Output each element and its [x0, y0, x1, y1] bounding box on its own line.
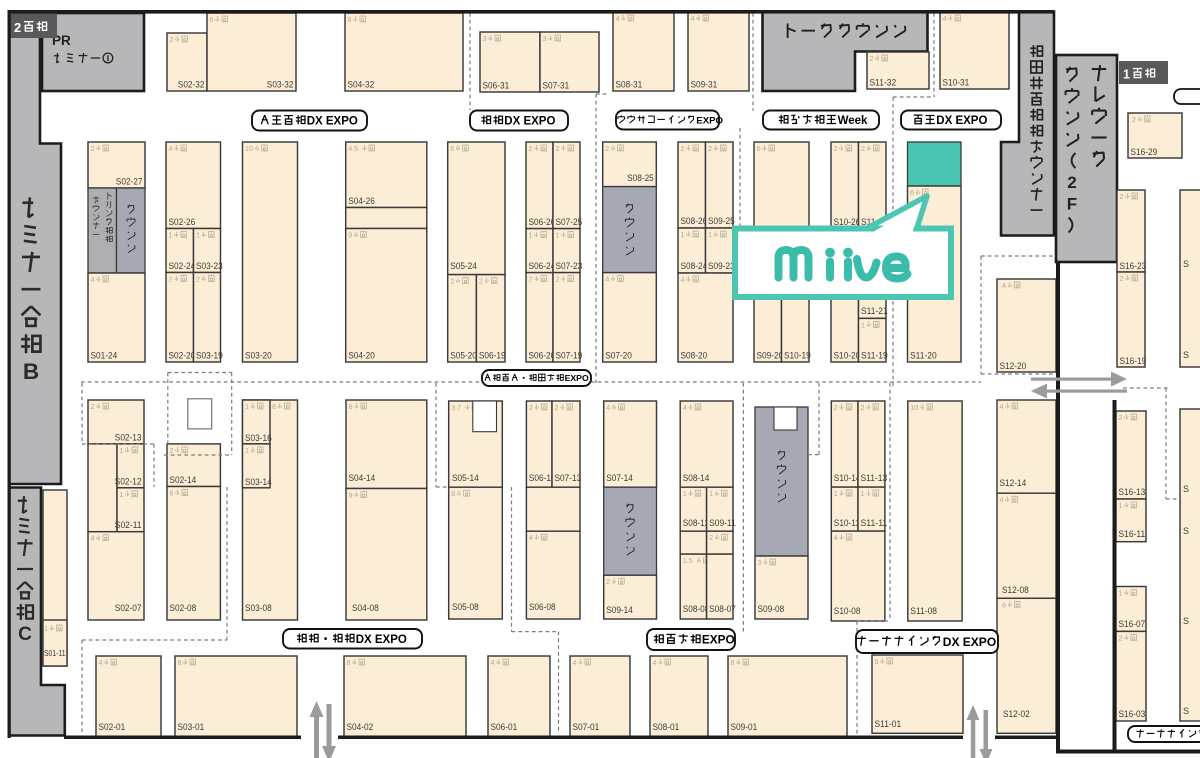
svg-text:S07-23: S07-23: [556, 261, 583, 271]
svg-text:S09-23: S09-23: [708, 261, 735, 271]
svg-text:1: 1: [861, 489, 865, 498]
svg-text:S08-08: S08-08: [683, 604, 710, 614]
svg-text:1: 1: [681, 230, 685, 239]
svg-text:8: 8: [178, 658, 182, 667]
svg-text:S16-13: S16-13: [1119, 487, 1146, 497]
svg-text:EXPO: EXPO: [702, 633, 735, 647]
svg-text:C: C: [18, 624, 32, 645]
svg-text:4: 4: [691, 14, 695, 23]
svg-text:S: S: [1183, 526, 1189, 536]
svg-text:2: 2: [834, 403, 838, 412]
svg-text:1: 1: [1119, 589, 1123, 598]
svg-text:S03-08: S03-08: [245, 603, 272, 613]
svg-text:S09-08: S09-08: [758, 604, 785, 614]
svg-text:2: 2: [1120, 192, 1124, 201]
svg-text:S12-20: S12-20: [1000, 361, 1027, 371]
svg-text:S07-01: S07-01: [573, 722, 600, 732]
svg-text:S05-14: S05-14: [452, 473, 479, 483]
svg-text:4: 4: [91, 275, 95, 284]
svg-text:S02-01: S02-01: [99, 722, 126, 732]
svg-text:2: 2: [834, 144, 838, 153]
svg-text:S07-14: S07-14: [606, 473, 633, 483]
svg-text:4: 4: [606, 403, 610, 412]
svg-text:EXPO: EXPO: [565, 373, 589, 383]
svg-text:S03-19: S03-19: [196, 351, 223, 361]
svg-text:S03-32: S03-32: [267, 80, 294, 90]
svg-text:S09-20: S09-20: [757, 351, 784, 361]
svg-text:4: 4: [169, 144, 173, 153]
svg-text:S02-27: S02-27: [116, 177, 143, 187]
svg-text:3: 3: [758, 558, 762, 567]
svg-text:4: 4: [834, 533, 838, 542]
svg-text:DX EXPO: DX EXPO: [936, 115, 987, 127]
svg-text:S09-01: S09-01: [731, 722, 758, 732]
svg-text:6: 6: [451, 489, 455, 498]
svg-text:1: 1: [529, 231, 533, 240]
svg-text:1: 1: [169, 231, 173, 240]
svg-text:6: 6: [757, 144, 761, 153]
svg-text:S02-14: S02-14: [170, 475, 197, 485]
svg-text:S06-20: S06-20: [529, 351, 556, 361]
svg-text:3: 3: [543, 34, 547, 43]
svg-text:S10-19: S10-19: [784, 351, 811, 361]
svg-text:S: S: [1183, 484, 1189, 494]
svg-text:S02-24: S02-24: [169, 261, 196, 271]
svg-text:4: 4: [683, 403, 687, 412]
svg-text:2: 2: [1119, 633, 1123, 642]
svg-text:8: 8: [731, 658, 735, 667]
svg-text:S04-26: S04-26: [348, 196, 375, 206]
svg-text:S16-11: S16-11: [1119, 529, 1146, 539]
svg-text:S16-19: S16-19: [1120, 356, 1147, 366]
svg-text:B: B: [23, 359, 39, 384]
svg-text:S07-25: S07-25: [556, 217, 583, 227]
svg-text:DX EXPO: DX EXPO: [356, 634, 407, 646]
svg-text:4: 4: [1000, 495, 1004, 504]
svg-text:S06-01: S06-01: [491, 722, 518, 732]
svg-text:S16-03: S16-03: [1119, 709, 1146, 719]
svg-text:S08-14: S08-14: [683, 473, 710, 483]
svg-text:2: 2: [170, 446, 174, 455]
svg-text:S16-07: S16-07: [1119, 619, 1146, 629]
svg-text:S: S: [1183, 616, 1189, 626]
svg-text:S08-24: S08-24: [681, 261, 708, 271]
svg-text:2: 2: [1120, 274, 1124, 283]
svg-text:6: 6: [349, 402, 353, 411]
svg-text:S06-26: S06-26: [529, 217, 556, 227]
svg-text:S11-32: S11-32: [870, 78, 897, 88]
svg-text:4: 4: [573, 658, 577, 667]
svg-text:1: 1: [683, 489, 687, 498]
svg-text:2: 2: [556, 144, 560, 153]
svg-text:2: 2: [196, 275, 200, 284]
svg-text:S02-07: S02-07: [115, 603, 142, 613]
svg-text:2: 2: [479, 277, 483, 286]
svg-text:S10-12: S10-12: [834, 518, 861, 528]
svg-text:S11-20: S11-20: [910, 351, 937, 361]
svg-text:6: 6: [348, 15, 352, 24]
svg-text:2: 2: [170, 35, 174, 44]
svg-text:2: 2: [708, 144, 712, 153]
svg-text:1: 1: [708, 230, 712, 239]
svg-text:S10-31: S10-31: [943, 78, 970, 88]
svg-text:2: 2: [861, 144, 865, 153]
svg-text:S05-20: S05-20: [450, 351, 477, 361]
svg-text:4: 4: [605, 275, 609, 284]
svg-text:10: 10: [245, 144, 253, 153]
svg-text:S10-08: S10-08: [834, 606, 861, 616]
svg-text:S06-19: S06-19: [479, 351, 506, 361]
svg-text:S16-29: S16-29: [1131, 147, 1158, 157]
svg-text:8: 8: [347, 658, 351, 667]
svg-text:S02-12: S02-12: [115, 476, 142, 486]
svg-text:S03-14: S03-14: [245, 477, 272, 487]
svg-text:S07-19: S07-19: [556, 351, 583, 361]
svg-text:S08-12: S08-12: [683, 518, 710, 528]
svg-text:3: 3: [483, 34, 487, 43]
svg-text:S03-23: S03-23: [196, 261, 223, 271]
svg-text:1: 1: [245, 446, 249, 455]
svg-text:1: 1: [1119, 501, 1123, 510]
svg-text:2: 2: [529, 144, 533, 153]
svg-text:DX EXPO: DX EXPO: [504, 116, 555, 128]
svg-text:4: 4: [653, 658, 657, 667]
svg-text:S02-20: S02-20: [169, 351, 196, 361]
svg-text:4: 4: [99, 658, 103, 667]
svg-text:S11-01: S11-01: [875, 719, 902, 729]
svg-text:2: 2: [870, 54, 874, 63]
svg-text:4: 4: [491, 658, 495, 667]
svg-text:8: 8: [272, 402, 276, 411]
svg-text:S05-24: S05-24: [450, 261, 477, 271]
svg-text:S02-11: S02-11: [115, 520, 142, 530]
svg-text:S07-20: S07-20: [605, 351, 632, 361]
svg-text:4: 4: [529, 533, 533, 542]
svg-text:S03-20: S03-20: [245, 351, 272, 361]
svg-text:4.5: 4.5: [348, 144, 358, 153]
svg-text:1: 1: [709, 489, 713, 498]
svg-text:2: 2: [861, 403, 865, 412]
svg-text:4: 4: [1002, 281, 1006, 290]
svg-text:4: 4: [681, 275, 685, 284]
svg-text:4: 4: [616, 14, 620, 23]
svg-text:S04-02: S04-02: [347, 722, 374, 732]
svg-text:S11-21: S11-21: [861, 306, 888, 316]
svg-text:S12-14: S12-14: [1000, 478, 1027, 488]
svg-text:1: 1: [196, 231, 200, 240]
svg-text:S08-26: S08-26: [681, 216, 708, 226]
svg-text:2: 2: [450, 277, 454, 286]
svg-text:1: 1: [44, 624, 48, 633]
svg-text:S08-07: S08-07: [709, 604, 736, 614]
svg-text:S12-08: S12-08: [1002, 585, 1029, 595]
svg-text:S10-20: S10-20: [834, 351, 861, 361]
svg-text:2: 2: [556, 275, 560, 284]
svg-text:1: 1: [861, 320, 865, 329]
svg-text:S11-11: S11-11: [861, 518, 888, 528]
svg-text:6: 6: [1002, 600, 1006, 609]
svg-text:DX EXPO: DX EXPO: [943, 635, 996, 649]
svg-text:S11-19: S11-19: [861, 351, 888, 361]
svg-text:S16-23: S16-23: [1120, 261, 1147, 271]
svg-text:4: 4: [91, 534, 95, 543]
svg-text:2: 2: [605, 144, 609, 153]
svg-text:1: 1: [834, 489, 838, 498]
svg-text:S03-01: S03-01: [178, 722, 205, 732]
svg-text:6: 6: [170, 489, 174, 498]
svg-text:S: S: [1183, 350, 1189, 360]
svg-text:S05-08: S05-08: [452, 602, 479, 612]
svg-text:S02-08: S02-08: [170, 603, 197, 613]
svg-text:DX EXPO: DX EXPO: [307, 116, 358, 128]
svg-text:S04-20: S04-20: [348, 351, 375, 361]
svg-text:S04-14: S04-14: [349, 473, 376, 483]
svg-text:1: 1: [245, 402, 249, 411]
svg-text:S02-13: S02-13: [115, 432, 142, 442]
svg-text:S: S: [1183, 259, 1189, 269]
svg-text:1.5: 1.5: [683, 556, 693, 565]
svg-text:F: F: [1067, 194, 1077, 213]
svg-text:4: 4: [1000, 402, 1004, 411]
svg-text:1: 1: [1123, 68, 1130, 82]
svg-text:2: 2: [1132, 115, 1136, 124]
svg-text:2: 2: [1067, 173, 1076, 192]
svg-text:2: 2: [606, 577, 610, 586]
svg-text:S: S: [1183, 706, 1189, 716]
svg-text:4: 4: [943, 14, 947, 23]
svg-text:6: 6: [875, 657, 879, 666]
svg-text:2: 2: [555, 403, 559, 412]
svg-text:2: 2: [169, 275, 173, 284]
svg-text:2: 2: [529, 275, 533, 284]
svg-text:S09-25: S09-25: [708, 216, 735, 226]
svg-text:1: 1: [120, 490, 124, 499]
svg-text:2: 2: [14, 20, 21, 35]
svg-text:S03-16: S03-16: [245, 433, 272, 443]
svg-text:2: 2: [1119, 413, 1123, 422]
svg-text:S10-14: S10-14: [834, 473, 861, 483]
svg-text:S08-20: S08-20: [681, 351, 708, 361]
svg-text:S08-01: S08-01: [653, 722, 680, 732]
svg-text:S06-31: S06-31: [483, 81, 510, 91]
svg-text:2: 2: [709, 533, 713, 542]
svg-text:S02-26: S02-26: [169, 217, 196, 227]
svg-text:Week: Week: [838, 115, 868, 127]
svg-text:EXPO: EXPO: [696, 116, 723, 127]
svg-text:9: 9: [348, 231, 352, 240]
svg-text:S09-11: S09-11: [709, 518, 736, 528]
svg-text:3.7: 3.7: [451, 403, 461, 412]
svg-text:S09-14: S09-14: [606, 605, 633, 615]
svg-text:S12-02: S12-02: [1003, 709, 1030, 719]
svg-text:S07-31: S07-31: [543, 81, 570, 91]
svg-text:6: 6: [210, 15, 214, 24]
svg-text:9: 9: [349, 491, 353, 500]
svg-text:2: 2: [91, 144, 95, 153]
svg-text:S07-13: S07-13: [555, 473, 582, 483]
svg-text:S04-08: S04-08: [352, 603, 379, 613]
svg-text:2: 2: [681, 144, 685, 153]
svg-text:S01-11: S01-11: [44, 649, 66, 658]
svg-text:1: 1: [556, 231, 560, 240]
svg-text:S06-24: S06-24: [529, 261, 556, 271]
svg-text:6: 6: [450, 144, 454, 153]
svg-text:S04-32: S04-32: [348, 80, 375, 90]
svg-text:S11-08: S11-08: [910, 606, 937, 616]
svg-text:2: 2: [529, 403, 533, 412]
svg-text:2: 2: [91, 402, 95, 411]
svg-text:S08-25: S08-25: [627, 173, 654, 183]
svg-text:10: 10: [910, 403, 918, 412]
svg-text:S11-13: S11-13: [861, 473, 888, 483]
svg-text:6: 6: [910, 188, 914, 197]
svg-text:S09-31: S09-31: [691, 80, 718, 90]
svg-text:1: 1: [120, 446, 124, 455]
svg-text:S08-31: S08-31: [616, 80, 643, 90]
svg-text:S06-08: S06-08: [529, 602, 556, 612]
svg-text:S02-32: S02-32: [178, 80, 205, 90]
svg-text:S01-24: S01-24: [91, 351, 118, 361]
